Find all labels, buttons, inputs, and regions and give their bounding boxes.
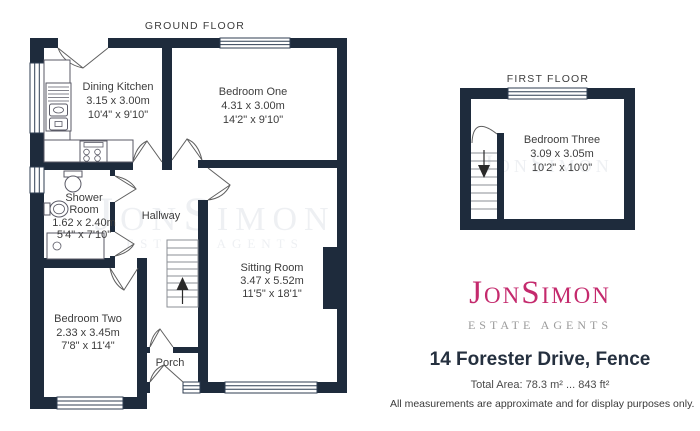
- kitchen-window: [30, 63, 44, 133]
- svg-text:JonSimon: JonSimon: [94, 188, 335, 241]
- room-label-sitting-room: Sitting Room 3.47 x 5.52m 11'5" x 18'1": [240, 262, 304, 300]
- svg-text:14'2" x 9'10": 14'2" x 9'10": [223, 114, 283, 126]
- room-label-hallway: Hallway: [142, 210, 181, 222]
- room-label-bedroom-three: Bedroom Three 3.09 x 3.05m 10'2" x 10'0": [524, 134, 600, 174]
- room-label-bedroom-one: Bedroom One 4.31 x 3.00m 14'2" x 9'10": [219, 86, 287, 126]
- svg-text:Dining Kitchen: Dining Kitchen: [83, 81, 154, 93]
- sitting-room-window: [225, 382, 317, 393]
- svg-text:7'8" x 11'4": 7'8" x 11'4": [61, 340, 114, 352]
- bedroom-three-window: [508, 88, 587, 99]
- bedroom-one-door: [172, 139, 202, 160]
- shower-room-window: [30, 167, 44, 193]
- hallway-porch-door: [150, 329, 173, 347]
- svg-text:1.62 x 2.40m: 1.62 x 2.40m: [52, 217, 116, 229]
- svg-text:3.47 x 5.52m: 3.47 x 5.52m: [240, 275, 304, 287]
- svg-text:ESTATE AGENTS: ESTATE AGENTS: [126, 236, 304, 251]
- svg-text:11'5" x 18'1": 11'5" x 18'1": [242, 288, 302, 300]
- room-label-dining-kitchen: Dining Kitchen 3.15 x 3.00m 10'4" x 9'10…: [83, 81, 154, 121]
- disclaimer-text: All measurements are approximate and for…: [390, 398, 690, 410]
- bedroom-two-door: [110, 268, 138, 290]
- logo-letters: ON: [484, 283, 521, 308]
- room-label-bedroom-two: Bedroom Two 2.33 x 3.45m 7'8" x 11'4": [54, 313, 122, 352]
- svg-text:Bedroom Two: Bedroom Two: [54, 313, 122, 325]
- total-area-text: Total Area: 78.3 m² ... 843 ft²: [390, 379, 690, 391]
- svg-text:Sitting Room: Sitting Room: [241, 262, 304, 274]
- first-floor-title: FIRST FLOOR: [507, 73, 589, 85]
- bedroom-two-window: [57, 397, 123, 409]
- svg-text:5'4" x 7'10": 5'4" x 7'10": [57, 229, 111, 241]
- logo-letter: J: [469, 275, 484, 311]
- svg-text:3.15 x 3.00m: 3.15 x 3.00m: [86, 95, 150, 107]
- svg-text:Room: Room: [69, 204, 98, 216]
- kitchen-sink-icon: [46, 83, 71, 131]
- svg-text:3.09 x 3.05m: 3.09 x 3.05m: [530, 148, 594, 160]
- logo-letters: IMON: [542, 283, 611, 308]
- floorplan-page: JonSimon ESTATE AGENTS JonSimon GROUND F…: [0, 0, 700, 431]
- svg-text:Shower: Shower: [65, 192, 103, 204]
- toilet-icon: [64, 171, 82, 192]
- svg-text:Bedroom One: Bedroom One: [219, 86, 287, 98]
- svg-text:2.33 x 3.45m: 2.33 x 3.45m: [56, 327, 120, 339]
- property-address: 14 Forester Drive, Fence: [390, 349, 690, 371]
- bedroom-one-window: [220, 38, 290, 48]
- chimney-breast: [323, 247, 347, 309]
- jonsimon-logo: JONSIMON: [390, 276, 690, 316]
- porch-sidelight-window: [183, 382, 200, 393]
- kitchen-hallway-door: [133, 141, 162, 162]
- staircase-ground-floor: [167, 240, 198, 307]
- stove-icon: [80, 141, 107, 162]
- logo-letter: S: [521, 275, 541, 311]
- svg-text:4.31 x 3.00m: 4.31 x 3.00m: [221, 100, 285, 112]
- svg-text:10'4" x 9'10": 10'4" x 9'10": [88, 109, 148, 121]
- logo-tagline: ESTATE AGENTS: [390, 318, 690, 333]
- svg-text:Bedroom Three: Bedroom Three: [524, 134, 600, 146]
- branding-block: JONSIMON ESTATE AGENTS 14 Forester Drive…: [390, 276, 690, 410]
- room-label-porch: Porch: [156, 357, 185, 369]
- svg-text:10'2" x 10'0": 10'2" x 10'0": [532, 162, 592, 174]
- ground-floor-title: GROUND FLOOR: [145, 20, 245, 32]
- stair-head-curve: [472, 126, 497, 143]
